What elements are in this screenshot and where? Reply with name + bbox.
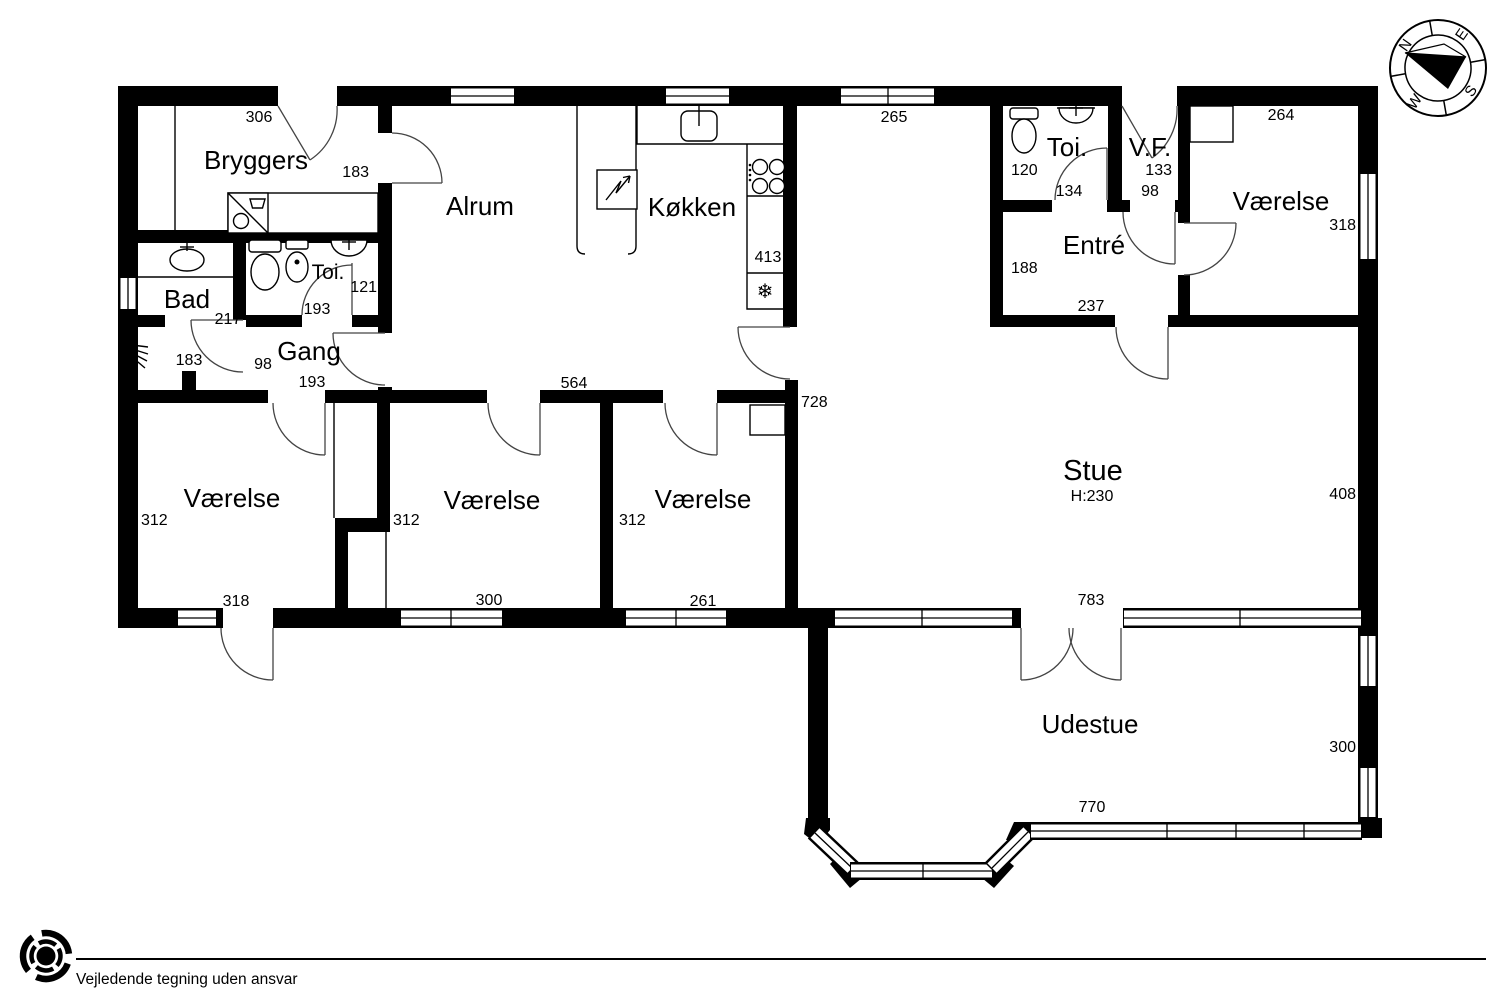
wall: [378, 86, 392, 133]
wall: [377, 403, 390, 518]
french-door-stue-udestue: [1021, 628, 1121, 680]
dim-kokken: 413: [755, 249, 782, 266]
dim-toi-west: 121: [350, 279, 377, 296]
toilet-icon: [1010, 108, 1038, 153]
door-alrum-stue: [738, 327, 790, 379]
footer-disclaimer: Vejledende tegning uden ansvar: [76, 971, 298, 988]
wall: [378, 183, 392, 333]
dim-bad-lower: 183: [176, 352, 203, 369]
wall: [1168, 315, 1190, 327]
wall: [1108, 106, 1122, 210]
window: [834, 610, 1013, 626]
logo-letter: e: [42, 949, 50, 966]
window: [1030, 824, 1362, 838]
dim-bryggers-door: 183: [342, 164, 369, 181]
wall: [182, 371, 196, 391]
dim-entre-south: 237: [1078, 298, 1105, 315]
washing-machine-icon: [228, 193, 268, 233]
wall: [1178, 106, 1190, 223]
compass-needle: [1405, 53, 1466, 89]
wall: [783, 86, 797, 327]
dim-toi-east-door: 134: [1056, 183, 1083, 200]
room-label-stue: Stue: [1063, 455, 1123, 487]
window: [850, 864, 993, 878]
dim-udestue-south: 770: [1079, 799, 1106, 816]
room-label-vf: V.F.: [1129, 132, 1171, 162]
wall: [935, 86, 1122, 106]
wall: [133, 315, 165, 327]
bidet-icon: [286, 240, 308, 282]
wall: [785, 380, 798, 608]
bathroom-sink-icon: [125, 243, 233, 277]
wall: [233, 243, 246, 320]
wall: [990, 106, 1003, 327]
fridge-icon: ❄: [757, 281, 774, 303]
wall: [1013, 608, 1021, 628]
room-label-kokken: Køkken: [648, 192, 736, 222]
compass-east: E: [1452, 26, 1472, 44]
room-label-udestue: Udestue: [1042, 709, 1139, 739]
dim-toi-west-door: 193: [304, 301, 331, 318]
wall: [325, 390, 487, 403]
ceiling-height-note: H:230: [1071, 488, 1114, 505]
wall: [1190, 315, 1378, 327]
footer: e Vejledende tegning uden ansvar: [17, 927, 1486, 988]
dim-gang-door: 98: [254, 356, 272, 373]
wall: [352, 315, 378, 327]
wall: [515, 86, 665, 106]
dim-vaerelse-sw-south: 318: [223, 593, 250, 610]
logo-icon: e: [17, 927, 76, 986]
fireplace-icon: [577, 106, 637, 254]
dim-vaerelse-s-west: 312: [393, 512, 420, 529]
door-vf-entre: [1123, 212, 1175, 264]
window: [840, 88, 935, 104]
compass-icon: N E S W: [1371, 1, 1500, 135]
room-label-alrum: Alrum: [446, 191, 514, 221]
closet: [750, 405, 785, 435]
wall: [335, 518, 390, 532]
dim-vf-door: 98: [1141, 183, 1159, 200]
wall: [118, 390, 268, 403]
dim-toi-east: 120: [1011, 162, 1038, 179]
room-label-entre: Entré: [1063, 230, 1125, 260]
window: [1123, 610, 1362, 626]
door-gang-vaerelse: [273, 403, 325, 455]
wall: [808, 618, 828, 828]
dim-stue-south: 783: [1078, 592, 1105, 609]
dim-stue-east: 408: [1329, 486, 1356, 503]
window: [625, 610, 727, 626]
room-label-bryggers: Bryggers: [204, 145, 308, 175]
door-vaerelse-sw-garden: [221, 628, 273, 680]
wall: [118, 86, 278, 106]
dim-alrum-south: 564: [561, 375, 588, 392]
wall: [118, 608, 177, 628]
room-label-vaerelse-sw: Værelse: [184, 483, 281, 513]
wall: [1358, 86, 1378, 173]
dim-stue-north-window: 265: [881, 109, 908, 126]
dim-udestue-east: 300: [1329, 739, 1356, 756]
door-entre-stue: [1116, 327, 1168, 379]
dim-vaerelse-se-south: 261: [690, 593, 717, 610]
dim-vaerelse-se-west: 312: [619, 512, 646, 529]
wall: [1177, 86, 1378, 106]
door-alrum-vaerelse-se: [665, 403, 717, 455]
dim-gang-south-door: 193: [299, 374, 326, 391]
room-label-gang: Gang: [277, 336, 341, 366]
kitchen-sink-icon: [681, 106, 717, 141]
room-label-vaerelse-se: Værelse: [655, 484, 752, 514]
door-bryggers-alrum: [392, 133, 442, 183]
room-label-toi-west: Toi.: [312, 261, 345, 284]
dim-vaerelse-s-south: 300: [476, 592, 503, 609]
wall: [118, 86, 138, 277]
stove-icon: [749, 160, 785, 194]
wall: [1122, 200, 1130, 212]
compass-south: S: [1461, 82, 1481, 100]
room-label-bad: Bad: [164, 284, 210, 314]
dim-vf: 133: [1145, 162, 1172, 179]
wall: [335, 532, 348, 620]
floor-plan: ❄ Bryggers Bad Toi. Gang Alrum Køkken To…: [0, 0, 1500, 1000]
room-label-toi-east: Toi.: [1047, 132, 1087, 162]
dim-vaerelse-sw-west: 312: [141, 512, 168, 529]
wall: [217, 608, 223, 628]
wall: [246, 315, 302, 327]
dim-stue-west: 728: [801, 394, 828, 411]
dim-vaerelse-ne-north: 264: [1268, 107, 1295, 124]
wall: [337, 86, 450, 106]
wall: [990, 315, 1115, 327]
dim-vaerelse-ne-window: 318: [1329, 217, 1356, 234]
closet: [1190, 106, 1233, 142]
dim-entre: 188: [1011, 260, 1038, 277]
dim-bad: 217: [215, 311, 242, 328]
room-label-vaerelse-s: Værelse: [444, 485, 541, 515]
wall: [600, 390, 613, 628]
dim-bryggers-top: 306: [246, 109, 273, 126]
wall: [118, 310, 138, 628]
door-alrum-vaerelse-s: [488, 403, 540, 455]
room-label-vaerelse-ne: Værelse: [1233, 186, 1330, 216]
toilet-icon: [249, 240, 281, 290]
door-vaerelse-ne: [1184, 223, 1236, 275]
wall: [1003, 200, 1052, 212]
wall: [1358, 687, 1378, 767]
window: [400, 610, 503, 626]
compass-west: W: [1404, 91, 1427, 113]
